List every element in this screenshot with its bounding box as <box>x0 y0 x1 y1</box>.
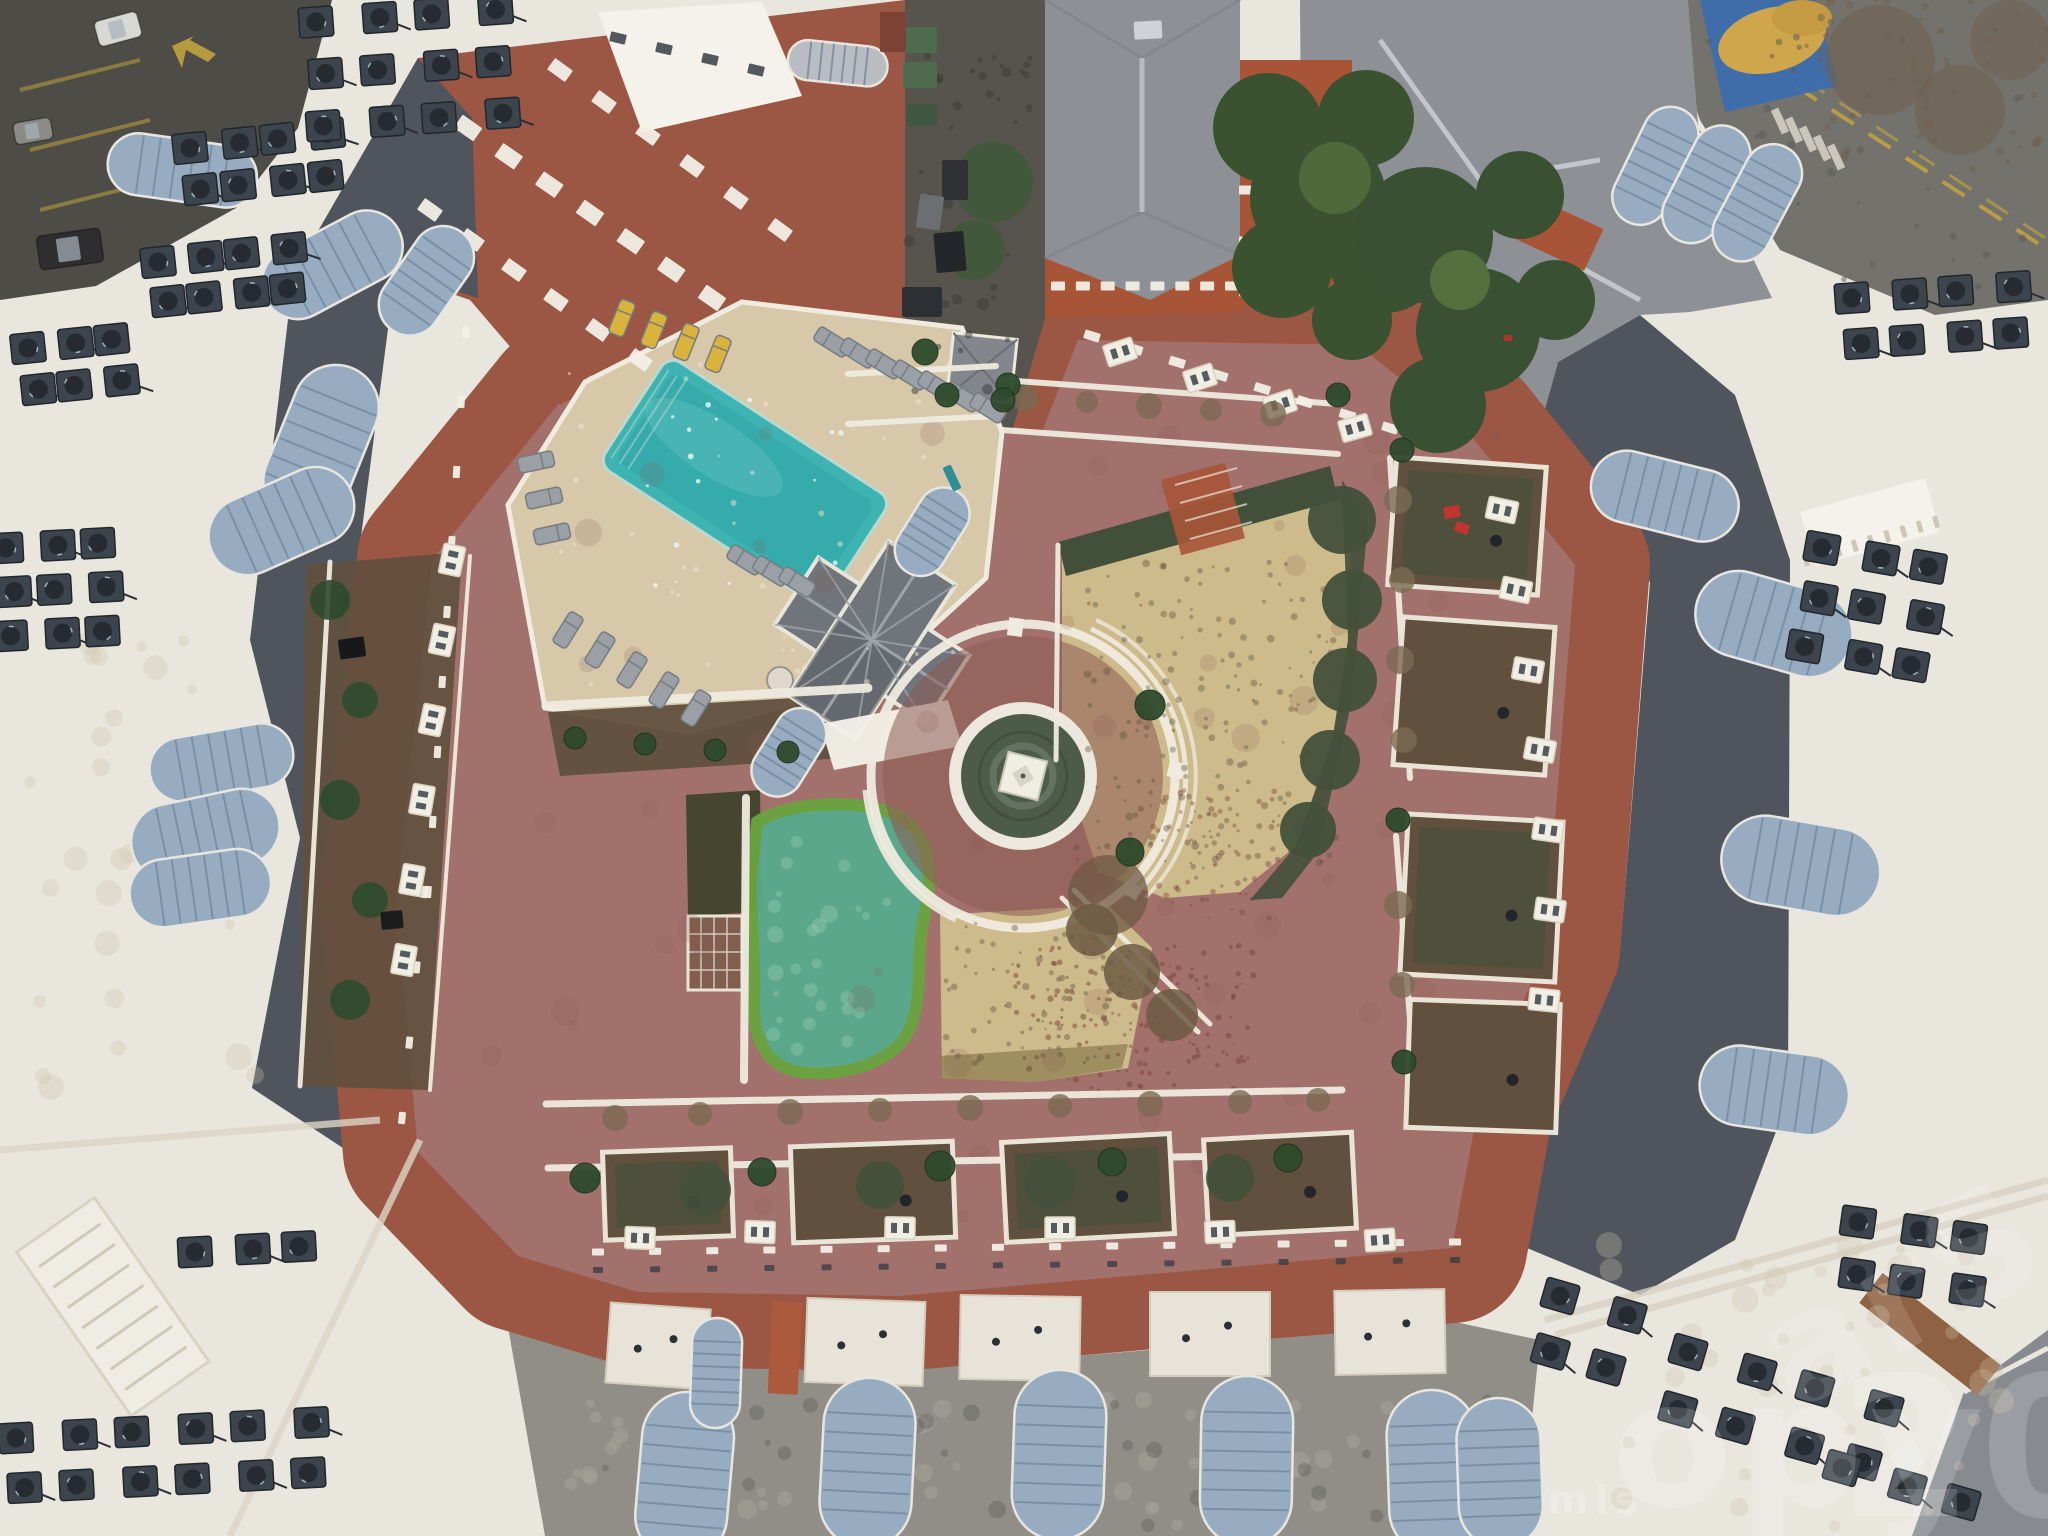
prop <box>880 12 906 52</box>
speckle <box>893 815 910 832</box>
speckle <box>1068 1078 1070 1080</box>
speckle <box>551 997 580 1026</box>
window <box>821 1264 831 1270</box>
speckle <box>246 1066 264 1084</box>
speckle <box>1252 876 1257 881</box>
window <box>1076 282 1090 291</box>
speckle <box>1023 1056 1026 1059</box>
bay-frame <box>391 943 418 976</box>
window <box>1336 1258 1346 1264</box>
speckle <box>1014 1010 1019 1015</box>
bay-window <box>885 1217 915 1240</box>
speckle <box>1790 68 1796 74</box>
speckle <box>1139 604 1142 607</box>
tree <box>1970 0 2048 80</box>
prop <box>338 636 367 659</box>
dormer-roof <box>1010 1368 1108 1536</box>
hvac-cluster <box>177 1231 316 1268</box>
window <box>405 1036 413 1049</box>
speckle <box>1208 798 1213 803</box>
speckle <box>754 1197 773 1216</box>
hvac-unit <box>175 1463 211 1495</box>
speckle <box>1165 947 1169 951</box>
hvac-unit <box>177 1236 213 1268</box>
speckle <box>1270 797 1275 802</box>
tree <box>957 1095 983 1121</box>
speckle <box>1298 1463 1312 1477</box>
speckle <box>629 532 634 537</box>
speckle <box>974 972 977 975</box>
tree <box>1384 486 1412 514</box>
speckle <box>104 988 124 1008</box>
speckle <box>688 453 694 459</box>
speckle <box>705 402 711 408</box>
terrace-floor <box>959 1295 1080 1381</box>
speckle <box>1052 961 1057 966</box>
speckle <box>778 1446 792 1460</box>
speckle <box>953 101 962 110</box>
speckle <box>1188 1041 1191 1044</box>
speckle <box>777 1491 792 1506</box>
speckle <box>1218 823 1224 829</box>
tree <box>1299 142 1371 214</box>
speckle <box>1157 482 1170 495</box>
speckle <box>991 295 996 300</box>
speckle <box>1261 802 1268 809</box>
speckle <box>1285 791 1291 797</box>
speckle <box>1143 1062 1147 1066</box>
shrub <box>1274 1144 1302 1172</box>
shrub <box>704 739 726 761</box>
speckle <box>1235 880 1241 886</box>
speckle <box>1289 686 1318 715</box>
speckle <box>1160 799 1166 805</box>
window <box>593 1267 603 1273</box>
barrel-dormer <box>1199 1375 1294 1536</box>
speckle <box>1111 1012 1114 1015</box>
shrub <box>1098 1148 1126 1176</box>
bay-window <box>1205 1220 1236 1243</box>
bay-window <box>391 943 418 976</box>
speckle <box>766 1027 780 1041</box>
bay-frame <box>1523 737 1556 764</box>
window <box>1107 1261 1117 1267</box>
speckle <box>1070 984 1075 989</box>
speckle <box>1311 1485 1326 1500</box>
speckle <box>1951 258 1955 262</box>
speckle <box>1242 1059 1246 1063</box>
speckle <box>1186 794 1192 800</box>
speckle <box>1209 830 1211 832</box>
speckle <box>1104 843 1110 849</box>
speckle <box>1239 910 1245 916</box>
window <box>764 1265 774 1271</box>
speckle <box>137 641 147 651</box>
speckle <box>1041 1011 1047 1017</box>
hvac-unit <box>1993 317 2029 349</box>
speckle <box>1094 1055 1097 1058</box>
speckle <box>1219 850 1225 856</box>
tree <box>1260 401 1286 427</box>
top-building <box>1045 0 1242 318</box>
shrub <box>925 1151 955 1181</box>
speckle <box>1054 1020 1060 1026</box>
speckle <box>1253 700 1259 706</box>
speckle <box>1139 1023 1143 1027</box>
speckle <box>765 1440 771 1446</box>
hvac-unit <box>85 615 121 647</box>
speckle <box>682 565 686 569</box>
speckle <box>1151 779 1155 783</box>
patio-planting <box>1413 827 1551 970</box>
speckle <box>1250 680 1257 687</box>
speckle <box>568 372 571 375</box>
terrace-furniture <box>1224 1322 1232 1330</box>
speckle <box>1190 821 1193 824</box>
speckle <box>1818 14 1825 21</box>
speckle <box>815 1000 826 1011</box>
speckle <box>1188 973 1194 979</box>
speckle <box>1194 810 1196 812</box>
speckle <box>1300 597 1305 602</box>
speckle <box>1776 39 1783 46</box>
speckle <box>1084 671 1092 679</box>
speckle <box>943 1034 950 1041</box>
tree <box>1915 65 2005 155</box>
speckle <box>1282 1083 1306 1107</box>
speckle <box>1066 976 1069 979</box>
bay-frame <box>1534 897 1567 923</box>
speckle <box>1161 753 1166 758</box>
speckle <box>1212 856 1219 863</box>
speckle <box>589 682 594 687</box>
speckle <box>970 68 975 73</box>
speckle <box>1291 613 1298 620</box>
speckle <box>759 427 772 440</box>
window <box>434 746 442 758</box>
speckle <box>782 649 785 652</box>
speckle <box>750 470 755 475</box>
speckle <box>1827 19 1833 25</box>
speckle <box>1243 877 1247 881</box>
speckle <box>1217 784 1224 791</box>
speckle <box>1020 69 1025 74</box>
speckle <box>1841 277 1846 282</box>
speckle <box>178 635 189 646</box>
speckle <box>1192 1055 1197 1060</box>
speckle <box>2019 145 2022 148</box>
speckle <box>818 511 824 517</box>
speckle <box>964 964 968 968</box>
bay-glass <box>1223 1227 1229 1237</box>
speckle <box>1362 1450 1371 1459</box>
speckle <box>1073 1076 1079 1082</box>
speckle <box>803 1398 818 1413</box>
speckle <box>1116 1069 1119 1072</box>
speckle <box>853 428 855 430</box>
dormer-roof <box>689 1317 743 1429</box>
tree <box>1137 1091 1163 1117</box>
window <box>443 606 451 618</box>
speckle <box>1216 1014 1222 1020</box>
speckle <box>1921 3 1929 11</box>
tree <box>1228 1090 1252 1114</box>
speckle <box>1246 1056 1249 1059</box>
aerial-photo-svg: opy20arSmls <box>0 0 2048 1536</box>
bay-glass <box>1546 995 1553 1006</box>
speckle <box>1200 897 1205 902</box>
speckle <box>1232 724 1260 752</box>
speckle <box>1082 1024 1086 1028</box>
speckle <box>670 590 674 594</box>
speckle <box>1169 965 1171 967</box>
speckle <box>1021 1031 1025 1035</box>
tree <box>1068 855 1148 935</box>
speckle <box>1149 804 1152 807</box>
speckle <box>1194 876 1198 880</box>
shrub <box>634 733 656 755</box>
hvac-unit <box>185 281 222 314</box>
speckle <box>1057 959 1063 965</box>
speckle <box>1233 1043 1235 1045</box>
speckle <box>1600 1258 1623 1281</box>
tree <box>856 1161 904 1209</box>
speckle <box>1060 1008 1063 1011</box>
speckle <box>1763 105 1771 113</box>
bay-glass <box>751 1227 757 1237</box>
speckle <box>1275 857 1281 863</box>
speckle <box>977 57 983 63</box>
speckle <box>1076 858 1079 861</box>
speckle <box>1846 1 1854 9</box>
shrub <box>912 339 938 365</box>
speckle <box>1283 801 1287 805</box>
bay-frame <box>1511 657 1544 684</box>
speckle <box>996 97 1001 102</box>
speckle <box>1937 28 1944 35</box>
shrub <box>1135 690 1165 720</box>
speckle <box>1185 1410 1196 1421</box>
speckle <box>38 1074 64 1100</box>
hvac-unit <box>140 245 177 278</box>
speckle <box>1085 587 1091 593</box>
speckle <box>1236 789 1239 792</box>
speckle <box>1204 975 1209 980</box>
speckle <box>1121 637 1127 643</box>
speckle <box>1168 666 1175 673</box>
hvac-unit <box>1909 549 1948 584</box>
speckle <box>687 428 691 432</box>
speckle <box>1289 598 1293 602</box>
speckle <box>1949 233 1956 240</box>
speckle <box>737 1500 757 1520</box>
terrace-floor <box>805 1298 926 1386</box>
speckle <box>559 550 563 554</box>
speckle <box>916 711 938 733</box>
speckle <box>976 624 979 627</box>
speckle <box>1212 840 1217 845</box>
speckle <box>1200 654 1217 671</box>
speckle <box>904 236 915 247</box>
speckle <box>1202 867 1205 870</box>
bay-glass <box>763 1227 769 1237</box>
speckle <box>1099 1047 1102 1050</box>
speckle <box>1268 572 1273 577</box>
speckle <box>982 384 993 395</box>
speckle <box>1225 567 1230 572</box>
speckle <box>783 636 786 639</box>
speckle <box>1215 774 1220 779</box>
speckle <box>974 922 977 925</box>
speckle <box>1830 116 1838 124</box>
speckle <box>952 643 956 647</box>
speckle <box>1796 202 1800 206</box>
speckle <box>1248 655 1254 661</box>
speckle <box>1136 719 1141 724</box>
speckle <box>1189 904 1192 907</box>
speckle <box>1181 765 1188 772</box>
speckle <box>990 942 995 947</box>
window <box>1126 282 1140 291</box>
speckle <box>1192 1043 1195 1046</box>
speckle <box>1031 1013 1035 1017</box>
bay-window <box>1534 897 1567 923</box>
speckle <box>1087 602 1091 606</box>
speckle <box>1226 684 1231 689</box>
speckle <box>1276 823 1279 826</box>
shrub <box>991 388 1015 412</box>
speckle <box>1245 1025 1250 1030</box>
window <box>1221 1260 1231 1266</box>
hvac-unit <box>0 620 28 652</box>
speckle <box>776 891 782 897</box>
speckle <box>1061 1024 1064 1027</box>
bay-glass <box>891 1223 897 1233</box>
speckle <box>1012 925 1019 932</box>
speckle <box>2031 139 2040 148</box>
hvac-unit <box>80 527 116 559</box>
speckle <box>1166 703 1171 708</box>
speckle <box>1268 824 1274 830</box>
hvac-unit <box>421 102 457 134</box>
window <box>993 1262 1003 1268</box>
speckle <box>1141 1519 1154 1532</box>
speckle <box>833 560 838 565</box>
speckle <box>581 1466 597 1482</box>
speckle <box>924 1486 937 1499</box>
speckle <box>1818 68 1821 71</box>
tree <box>1430 250 1490 310</box>
speckle <box>1173 885 1178 890</box>
speckle <box>1235 985 1239 989</box>
speckle <box>1045 1034 1051 1040</box>
speckle <box>965 948 971 954</box>
speckle <box>933 1400 951 1418</box>
speckle <box>1057 946 1061 950</box>
speckle <box>696 479 701 484</box>
patio-ground <box>1406 999 1560 1132</box>
speckle <box>1125 1069 1128 1072</box>
speckle <box>830 430 835 435</box>
speckle <box>1225 796 1230 801</box>
hvac-unit <box>1834 282 1870 314</box>
bay-glass <box>631 1233 637 1243</box>
speckle <box>693 566 699 572</box>
speckle <box>1223 720 1228 725</box>
speckle <box>1249 839 1254 844</box>
prop <box>1504 335 1513 341</box>
speckle <box>1915 150 1920 155</box>
shrub <box>1326 383 1350 407</box>
window <box>820 1246 832 1253</box>
speckle <box>1077 1042 1082 1047</box>
tree <box>1146 989 1198 1041</box>
window <box>1101 282 1115 291</box>
speckle <box>225 920 235 930</box>
tree <box>1206 1154 1254 1202</box>
window <box>763 1246 775 1253</box>
bay-window <box>625 1226 656 1249</box>
speckle <box>812 958 822 968</box>
window <box>453 466 461 478</box>
tree <box>1048 1094 1072 1118</box>
speckle <box>1804 44 1808 48</box>
speckle <box>804 983 818 997</box>
speckle <box>1277 796 1283 802</box>
speckle <box>1190 801 1194 805</box>
speckle <box>1841 151 1849 159</box>
speckle <box>813 479 816 482</box>
speckle <box>914 1464 932 1482</box>
speckle <box>1190 838 1193 841</box>
speckle <box>1208 813 1211 816</box>
speckle <box>1270 846 1275 851</box>
speckle <box>1273 880 1277 884</box>
terrace-floor <box>1150 1292 1270 1376</box>
speckle <box>1049 1021 1052 1024</box>
speckle <box>1156 883 1162 889</box>
bay-window <box>1045 1217 1075 1239</box>
window <box>1049 1243 1061 1250</box>
speckle <box>1596 1232 1622 1258</box>
speckle <box>1237 829 1240 832</box>
speckle <box>943 1048 973 1078</box>
speckle <box>1207 1045 1211 1049</box>
speckle <box>965 331 973 339</box>
speckle <box>1086 1057 1090 1061</box>
speckle <box>838 430 844 436</box>
tree <box>1280 802 1336 858</box>
bay-frame <box>1045 1217 1075 1239</box>
bay-window <box>399 863 426 896</box>
roof-terrace <box>805 1298 926 1386</box>
speckle <box>1116 1053 1120 1057</box>
hvac-unit <box>223 237 260 270</box>
speckle <box>1119 731 1127 739</box>
speckle <box>1000 64 1004 68</box>
speckle <box>915 652 919 656</box>
speckle <box>1062 995 1068 1001</box>
speckle <box>1026 1066 1032 1072</box>
window <box>935 1244 947 1251</box>
shrub <box>935 383 959 407</box>
speckle <box>1134 1049 1138 1053</box>
speckle <box>1175 697 1181 703</box>
speckle <box>1172 651 1177 656</box>
speckle <box>791 836 803 848</box>
speckle <box>1244 893 1247 896</box>
bay-window <box>1364 1228 1395 1252</box>
